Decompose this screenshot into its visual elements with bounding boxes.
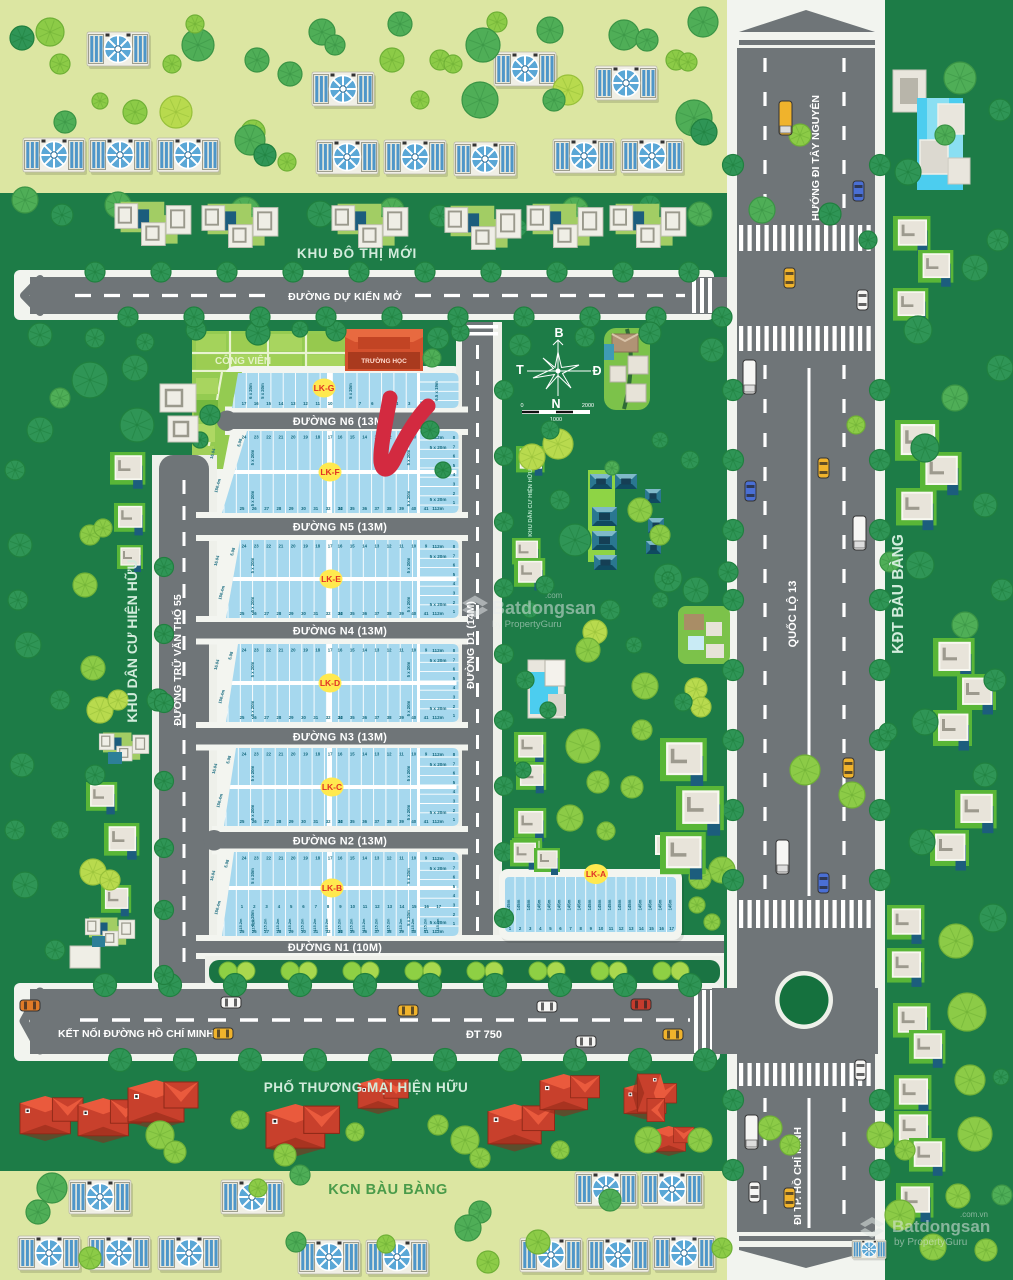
svg-text:29: 29 (289, 611, 294, 616)
svg-text:5 x 20m: 5 x 20m (250, 804, 255, 820)
svg-text:19: 19 (303, 856, 308, 861)
svg-text:16: 16 (424, 904, 429, 909)
svg-text:by PropertyGuru: by PropertyGuru (492, 619, 562, 630)
svg-text:145m: 145m (516, 899, 521, 910)
svg-text:ĐT 750: ĐT 750 (466, 1029, 502, 1041)
svg-text:19: 19 (303, 752, 308, 757)
svg-text:11: 11 (399, 752, 404, 757)
svg-text:145m: 145m (597, 899, 602, 910)
svg-text:30: 30 (301, 819, 306, 824)
svg-text:29: 29 (289, 929, 294, 934)
svg-text:15: 15 (350, 544, 355, 549)
svg-text:25: 25 (240, 929, 245, 934)
svg-text:16: 16 (338, 435, 343, 440)
svg-text:31: 31 (313, 819, 318, 824)
svg-text:ĐƯỜNG N2 (13M): ĐƯỜNG N2 (13M) (293, 834, 387, 847)
svg-text:32: 32 (326, 929, 331, 934)
svg-text:14: 14 (362, 435, 367, 440)
svg-text:29: 29 (289, 715, 294, 720)
svg-text:19: 19 (303, 544, 308, 549)
svg-text:32: 32 (326, 715, 331, 720)
svg-text:36: 36 (362, 715, 367, 720)
svg-text:145m: 145m (637, 899, 642, 910)
svg-text:35: 35 (350, 715, 355, 720)
svg-text:13: 13 (375, 752, 380, 757)
svg-text:145m: 145m (627, 899, 632, 910)
svg-text:5 x 20m: 5 x 20m (430, 706, 447, 711)
svg-text:ĐƯỜNG D1 (14M): ĐƯỜNG D1 (14M) (464, 601, 477, 689)
svg-text:28: 28 (277, 929, 282, 934)
svg-text:18: 18 (315, 648, 320, 653)
svg-text:11: 11 (399, 544, 404, 549)
svg-text:5 x 20m: 5 x 20m (406, 596, 411, 612)
svg-text:0: 0 (520, 403, 523, 409)
svg-text:35: 35 (350, 506, 355, 511)
svg-text:.com: .com (545, 591, 563, 600)
svg-text:10: 10 (350, 904, 355, 909)
svg-text:5 x 20m: 5 x 20m (250, 661, 255, 677)
svg-text:23: 23 (254, 856, 259, 861)
svg-text:145m: 145m (607, 899, 612, 910)
svg-text:25: 25 (240, 819, 245, 824)
svg-text:31: 31 (313, 611, 318, 616)
svg-text:17: 17 (328, 752, 333, 757)
svg-text:34: 34 (338, 929, 343, 934)
svg-text:N: N (551, 397, 560, 411)
svg-text:22: 22 (266, 544, 271, 549)
svg-text:145m: 145m (617, 899, 622, 910)
svg-text:18: 18 (315, 544, 320, 549)
svg-text:5 x 20m: 5 x 20m (430, 445, 447, 450)
svg-text:11: 11 (363, 904, 368, 909)
svg-text:112m: 112m (432, 611, 444, 616)
svg-text:5 x 20m: 5 x 20m (250, 557, 255, 573)
svg-text:5 x 20m: 5 x 20m (406, 910, 411, 926)
svg-text:25: 25 (240, 506, 245, 511)
svg-text:18: 18 (315, 856, 320, 861)
svg-text:24: 24 (242, 435, 247, 440)
svg-text:15: 15 (350, 752, 355, 757)
svg-text:41: 41 (424, 506, 429, 511)
svg-text:5 x 20m: 5 x 20m (250, 700, 255, 716)
svg-text:18: 18 (315, 435, 320, 440)
svg-text:41: 41 (424, 611, 429, 616)
svg-text:36: 36 (362, 929, 367, 934)
svg-text:TRƯỜNG HỌC: TRƯỜNG HỌC (361, 356, 407, 365)
svg-text:B: B (554, 326, 563, 340)
svg-text:13: 13 (387, 904, 392, 909)
svg-text:6 x 20m: 6 x 20m (248, 383, 253, 399)
svg-text:41: 41 (424, 819, 429, 824)
svg-text:39: 39 (399, 929, 404, 934)
svg-text:13: 13 (291, 401, 296, 406)
svg-text:12: 12 (387, 752, 392, 757)
svg-text:30: 30 (301, 611, 306, 616)
svg-text:16: 16 (254, 401, 259, 406)
svg-text:17: 17 (242, 401, 247, 406)
svg-text:by PropertyGuru: by PropertyGuru (894, 1237, 967, 1248)
svg-text:21: 21 (279, 856, 284, 861)
svg-text:LK-E: LK-E (321, 574, 341, 584)
svg-text:112m: 112m (432, 856, 444, 861)
svg-text:40: 40 (411, 715, 416, 720)
svg-text:KẾT NỐI ĐƯỜNG HỒ CHÍ MINH: KẾT NỐI ĐƯỜNG HỒ CHÍ MINH (58, 1026, 214, 1040)
svg-text:145m: 145m (668, 899, 673, 910)
svg-text:30: 30 (301, 506, 306, 511)
svg-text:40: 40 (411, 506, 416, 511)
svg-text:28: 28 (277, 819, 282, 824)
svg-text:38: 38 (387, 715, 392, 720)
svg-text:112m: 112m (432, 929, 444, 934)
svg-text:11: 11 (609, 926, 614, 931)
svg-text:5 x 20m: 5 x 20m (250, 910, 255, 926)
svg-text:17: 17 (328, 435, 333, 440)
svg-text:39: 39 (399, 611, 404, 616)
svg-text:QUỐC LỘ 13: QUỐC LỘ 13 (785, 581, 799, 648)
svg-text:35: 35 (350, 611, 355, 616)
svg-text:5 x 20m: 5 x 20m (430, 602, 447, 607)
svg-text:LK-C: LK-C (322, 782, 342, 792)
svg-text:25: 25 (240, 715, 245, 720)
svg-text:27: 27 (264, 506, 269, 511)
svg-text:ĐƯỜNG N4 (13M): ĐƯỜNG N4 (13M) (293, 624, 387, 637)
svg-text:21: 21 (279, 752, 284, 757)
svg-text:11: 11 (316, 401, 321, 406)
svg-text:14: 14 (362, 648, 367, 653)
svg-text:16: 16 (338, 752, 343, 757)
svg-text:5 x 20m: 5 x 20m (430, 866, 447, 871)
svg-text:21: 21 (279, 544, 284, 549)
svg-text:24: 24 (242, 856, 247, 861)
svg-text:6.5 x 19m: 6.5 x 19m (434, 381, 439, 401)
svg-text:Đ: Đ (592, 364, 601, 378)
svg-text:19: 19 (303, 435, 308, 440)
svg-text:17: 17 (328, 648, 333, 653)
svg-text:15: 15 (412, 904, 417, 909)
svg-text:ĐƯỜNG N3 (13M): ĐƯỜNG N3 (13M) (293, 730, 387, 743)
svg-text:30: 30 (301, 715, 306, 720)
svg-text:112m: 112m (432, 752, 444, 757)
svg-text:14: 14 (362, 856, 367, 861)
svg-text:5 x 20m: 5 x 20m (250, 490, 255, 506)
svg-text:20: 20 (291, 752, 296, 757)
svg-text:12: 12 (303, 401, 308, 406)
svg-text:27: 27 (264, 929, 269, 934)
svg-text:40: 40 (411, 929, 416, 934)
svg-text:24: 24 (242, 752, 247, 757)
svg-text:5 x 20m: 5 x 20m (260, 383, 265, 399)
svg-text:25: 25 (240, 611, 245, 616)
svg-text:5 x 20m: 5 x 20m (406, 490, 411, 506)
svg-text:145m: 145m (587, 899, 592, 910)
svg-text:12: 12 (619, 926, 624, 931)
svg-text:16: 16 (659, 926, 664, 931)
svg-text:14: 14 (279, 401, 284, 406)
svg-text:28: 28 (277, 506, 282, 511)
svg-text:35: 35 (350, 819, 355, 824)
svg-text:Batdongsan: Batdongsan (492, 598, 596, 618)
svg-text:145m: 145m (536, 899, 541, 910)
svg-text:20: 20 (291, 435, 296, 440)
svg-text:CÔNG VIÊN: CÔNG VIÊN (215, 354, 271, 367)
svg-text:5 x 20m: 5 x 20m (250, 868, 255, 884)
svg-text:145m: 145m (567, 899, 572, 910)
svg-text:28: 28 (277, 715, 282, 720)
svg-text:37: 37 (375, 819, 380, 824)
svg-text:145m: 145m (546, 899, 551, 910)
svg-text:35: 35 (350, 929, 355, 934)
svg-text:HƯỚNG ĐI TÂY NGUYÊN: HƯỚNG ĐI TÂY NGUYÊN (809, 95, 822, 221)
svg-text:5 x 20m: 5 x 20m (430, 658, 447, 663)
svg-text:T: T (516, 363, 524, 377)
svg-text:31: 31 (313, 929, 318, 934)
svg-text:12: 12 (387, 544, 392, 549)
svg-text:11: 11 (399, 856, 404, 861)
svg-text:37: 37 (375, 611, 380, 616)
svg-text:39: 39 (399, 819, 404, 824)
svg-text:PHỐ THƯƠNG MẠI HIỆN HỮU: PHỐ THƯƠNG MẠI HIỆN HỮU (264, 1080, 468, 1095)
svg-text:KCN BÀU BÀNG: KCN BÀU BÀNG (328, 1181, 448, 1198)
svg-text:40: 40 (411, 819, 416, 824)
svg-text:12: 12 (387, 856, 392, 861)
svg-text:37: 37 (375, 506, 380, 511)
svg-text:10: 10 (599, 926, 604, 931)
svg-text:27: 27 (264, 611, 269, 616)
svg-text:5 x 20m: 5 x 20m (406, 765, 411, 781)
svg-text:15: 15 (649, 926, 654, 931)
svg-text:12: 12 (387, 648, 392, 653)
svg-text:5 x 20m: 5 x 20m (406, 868, 411, 884)
svg-text:5 x 20m: 5 x 20m (430, 762, 447, 767)
svg-text:5 x 20m: 5 x 20m (406, 700, 411, 716)
svg-text:11: 11 (399, 648, 404, 653)
svg-text:39: 39 (399, 715, 404, 720)
svg-text:14: 14 (362, 752, 367, 757)
svg-text:17: 17 (328, 544, 333, 549)
svg-text:23: 23 (254, 544, 259, 549)
svg-text:5 x 20m: 5 x 20m (406, 661, 411, 677)
svg-text:ĐƯỜNG DỰ KIẾN MỞ: ĐƯỜNG DỰ KIẾN MỞ (288, 290, 402, 303)
svg-text:2000: 2000 (582, 403, 594, 409)
svg-text:LK-G: LK-G (314, 383, 335, 393)
svg-text:112m: 112m (432, 819, 444, 824)
svg-text:39: 39 (399, 506, 404, 511)
svg-text:Batdongsan: Batdongsan (892, 1217, 990, 1236)
svg-text:5 x 20m: 5 x 20m (430, 810, 447, 815)
svg-text:32: 32 (326, 611, 331, 616)
svg-text:145m: 145m (557, 899, 562, 910)
svg-text:22: 22 (266, 856, 271, 861)
svg-text:38: 38 (387, 819, 392, 824)
svg-text:112m: 112m (432, 506, 444, 511)
svg-text:24: 24 (242, 648, 247, 653)
svg-text:.com.vn: .com.vn (960, 1210, 988, 1219)
svg-text:38: 38 (387, 929, 392, 934)
svg-text:LK-B: LK-B (322, 883, 342, 893)
svg-text:KHU ĐÔ THỊ MỚI: KHU ĐÔ THỊ MỚI (297, 246, 417, 261)
svg-text:22: 22 (266, 752, 271, 757)
svg-text:36: 36 (362, 506, 367, 511)
svg-text:10: 10 (411, 544, 416, 549)
svg-text:13: 13 (629, 926, 634, 931)
svg-text:145m: 145m (526, 899, 531, 910)
svg-text:21: 21 (279, 435, 284, 440)
svg-text:13: 13 (375, 544, 380, 549)
svg-text:15: 15 (350, 856, 355, 861)
svg-text:14: 14 (400, 904, 405, 909)
svg-text:20: 20 (291, 856, 296, 861)
svg-text:27: 27 (264, 819, 269, 824)
svg-text:14: 14 (362, 544, 367, 549)
svg-text:5 x 20m: 5 x 20m (406, 557, 411, 573)
svg-text:5 x 20m: 5 x 20m (250, 449, 255, 465)
svg-text:KHU DÂN CƯ HIỆN HỮU: KHU DÂN CƯ HIỆN HỮU (526, 469, 534, 537)
svg-text:36: 36 (362, 611, 367, 616)
svg-text:15: 15 (350, 435, 355, 440)
svg-text:31: 31 (313, 506, 318, 511)
svg-text:13: 13 (375, 856, 380, 861)
svg-text:10: 10 (328, 401, 333, 406)
svg-text:22: 22 (266, 648, 271, 653)
svg-text:40: 40 (411, 611, 416, 616)
svg-text:16: 16 (338, 648, 343, 653)
svg-text:LK-F: LK-F (320, 467, 339, 477)
svg-text:27: 27 (264, 715, 269, 720)
svg-text:5 x 20m: 5 x 20m (430, 497, 447, 502)
svg-text:23: 23 (254, 435, 259, 440)
svg-text:29: 29 (289, 819, 294, 824)
svg-text:31: 31 (313, 715, 318, 720)
svg-text:23: 23 (254, 752, 259, 757)
svg-text:32: 32 (326, 506, 331, 511)
svg-text:30: 30 (301, 929, 306, 934)
svg-text:18: 18 (315, 752, 320, 757)
svg-text:20: 20 (291, 544, 296, 549)
svg-text:15: 15 (350, 648, 355, 653)
svg-text:13: 13 (375, 648, 380, 653)
svg-text:10: 10 (411, 752, 416, 757)
svg-text:5 x 20m: 5 x 20m (406, 449, 411, 465)
svg-text:24: 24 (242, 544, 247, 549)
svg-text:37: 37 (375, 929, 380, 934)
svg-text:23: 23 (254, 648, 259, 653)
svg-text:19: 19 (303, 648, 308, 653)
svg-text:5 x 20m: 5 x 20m (406, 804, 411, 820)
svg-text:26: 26 (252, 929, 257, 934)
svg-text:10: 10 (411, 856, 416, 861)
svg-text:5 x 20m: 5 x 20m (250, 596, 255, 612)
svg-text:41: 41 (424, 929, 429, 934)
svg-text:17: 17 (436, 904, 441, 909)
svg-text:38: 38 (387, 611, 392, 616)
svg-text:36: 36 (362, 819, 367, 824)
svg-text:22: 22 (266, 435, 271, 440)
svg-text:ĐƯỜNG N5 (13M): ĐƯỜNG N5 (13M) (293, 521, 387, 534)
svg-text:5 x 20m: 5 x 20m (250, 765, 255, 781)
svg-text:5 x 20m: 5 x 20m (348, 383, 353, 399)
svg-text:16: 16 (338, 544, 343, 549)
svg-text:34: 34 (338, 506, 343, 511)
svg-text:29: 29 (289, 506, 294, 511)
svg-text:145m: 145m (577, 899, 582, 910)
svg-text:112m: 112m (432, 544, 444, 549)
svg-text:5 x 20m: 5 x 20m (430, 554, 447, 559)
svg-text:10: 10 (411, 648, 416, 653)
svg-text:20: 20 (291, 648, 296, 653)
svg-text:145m: 145m (658, 899, 663, 910)
svg-text:ĐƯỜNG N6 (13M): ĐƯỜNG N6 (13M) (293, 415, 387, 428)
svg-text:16: 16 (338, 856, 343, 861)
svg-text:KĐT BÀU BÀNG: KĐT BÀU BÀNG (890, 534, 907, 654)
svg-text:LK-A: LK-A (586, 869, 606, 879)
svg-text:17: 17 (328, 856, 333, 861)
svg-text:28: 28 (277, 611, 282, 616)
svg-text:17: 17 (669, 926, 674, 931)
svg-text:LK-D: LK-D (320, 678, 340, 688)
svg-text:5 x 20m: 5 x 20m (430, 920, 447, 925)
svg-text:32: 32 (326, 819, 331, 824)
svg-text:34: 34 (338, 819, 343, 824)
svg-text:38: 38 (387, 506, 392, 511)
svg-text:12: 12 (375, 904, 380, 909)
svg-text:15: 15 (266, 401, 271, 406)
svg-text:41: 41 (424, 715, 429, 720)
svg-text:34: 34 (338, 611, 343, 616)
svg-text:112m: 112m (432, 715, 444, 720)
svg-text:145m: 145m (647, 899, 652, 910)
svg-text:37: 37 (375, 715, 380, 720)
svg-text:14: 14 (639, 926, 644, 931)
svg-text:34: 34 (338, 715, 343, 720)
svg-text:21: 21 (279, 648, 284, 653)
svg-text:ĐƯỜNG N1 (10M): ĐƯỜNG N1 (10M) (288, 941, 382, 954)
svg-text:112m: 112m (432, 648, 444, 653)
svg-text:KHU DÂN CƯ HIỆN HỮU: KHU DÂN CƯ HIỆN HỮU (123, 559, 140, 722)
